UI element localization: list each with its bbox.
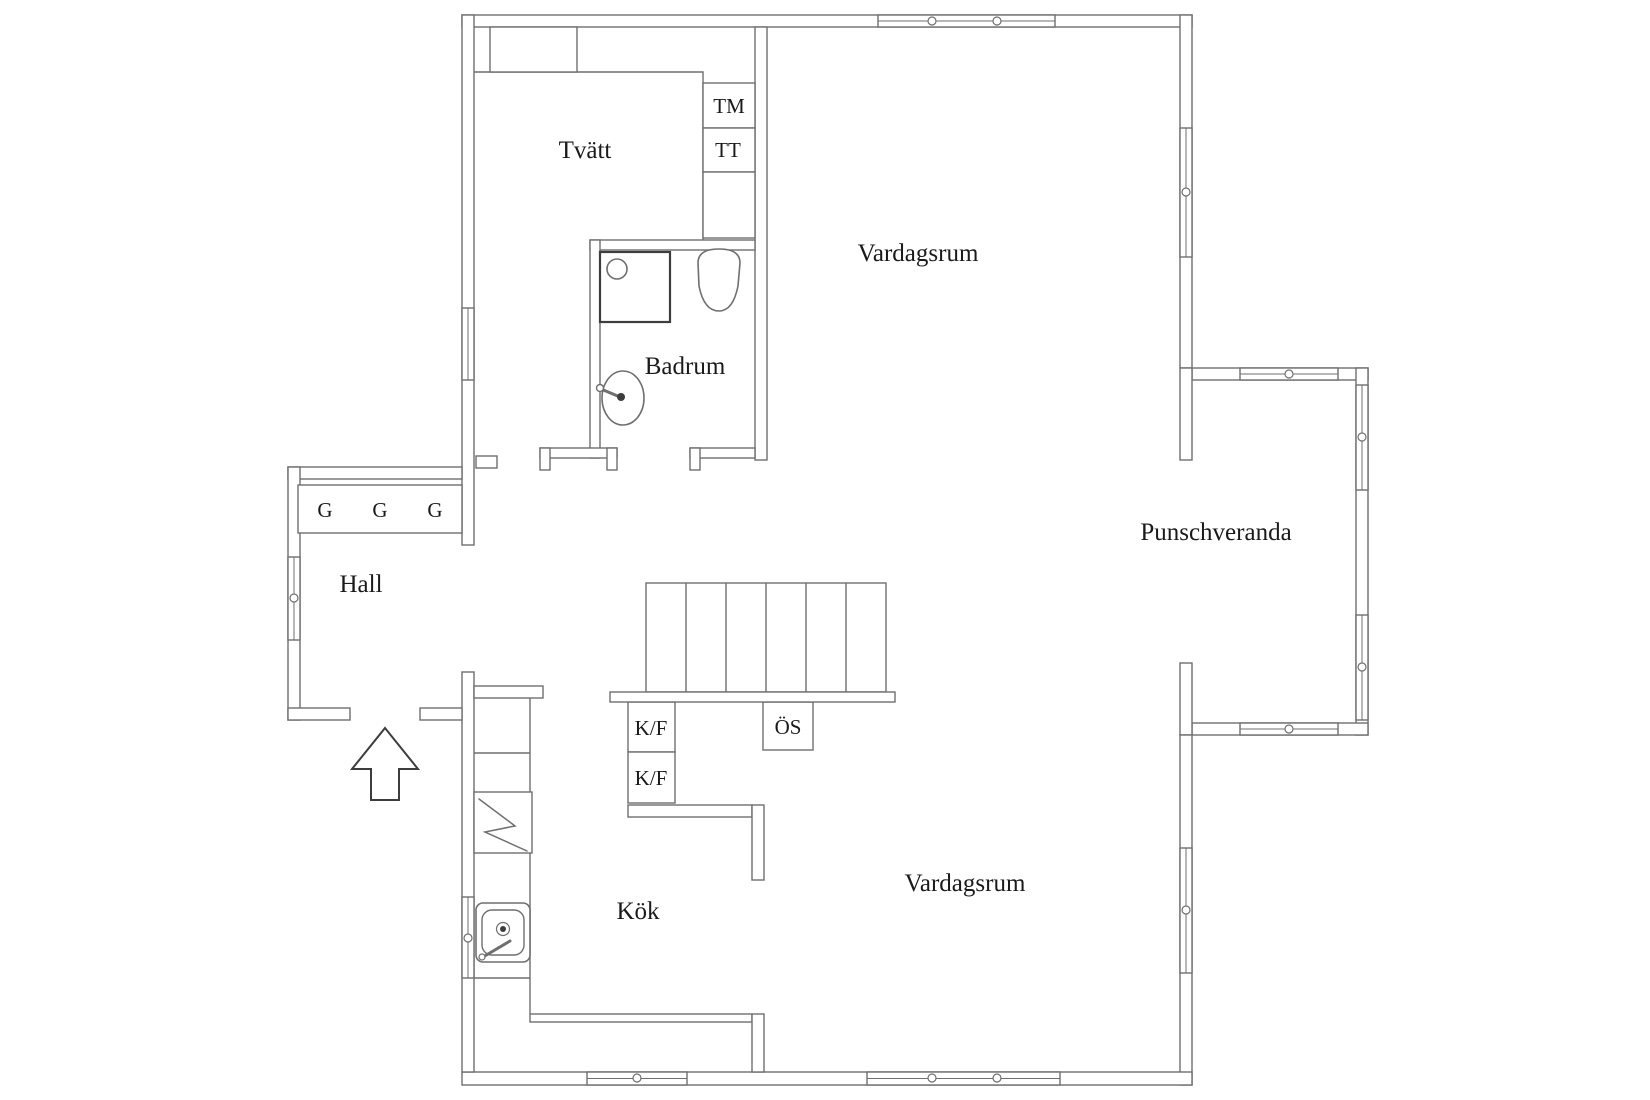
- tvatt-empty-bay: [703, 172, 755, 238]
- window-mullion-icon: [993, 1074, 1001, 1082]
- window-mullion-icon: [1182, 188, 1190, 196]
- floor-plan-page: TvättBadrumVardagsrumHallKökVardagsrumPu…: [0, 0, 1650, 1100]
- wall-block-bottom-left: [540, 448, 617, 458]
- wall-bottom: [462, 1072, 1192, 1085]
- window-mullion-icon: [928, 17, 936, 25]
- window-mullion-icon: [290, 594, 298, 602]
- room-label-badrum: Badrum: [645, 353, 726, 380]
- window-mullion-icon: [464, 934, 472, 942]
- wall-door-jamb-1: [540, 448, 550, 470]
- wall-right-mid-b: [1180, 663, 1192, 735]
- label-closet-2: G: [372, 498, 387, 522]
- wall-kitchen-east-h: [628, 805, 752, 817]
- floor-plan: TvättBadrumVardagsrumHallKökVardagsrumPu…: [0, 0, 1650, 1100]
- label-closet-1: G: [317, 498, 332, 522]
- bathroom-sink-icon: [597, 385, 604, 392]
- stair-landing: [610, 692, 895, 702]
- room-label-vardagsrum-lower: Vardagsrum: [905, 870, 1026, 897]
- room-label-vardagsrum-upper: Vardagsrum: [858, 240, 979, 267]
- window-mullion-icon: [1285, 370, 1293, 378]
- entrance-arrow-icon: [352, 728, 418, 800]
- wall-kitchen-south: [530, 1014, 752, 1022]
- wall-hall-bottom-left: [288, 708, 350, 720]
- wall-right-mid-a: [1180, 368, 1192, 460]
- shower-icon: [607, 259, 627, 279]
- label-tumble-dryer: TT: [715, 138, 741, 162]
- bathroom-sink-icon: [617, 393, 625, 401]
- window-mullion-icon: [1358, 433, 1366, 441]
- wall-kitchen-south-v: [752, 1014, 764, 1072]
- window-mullion-icon: [1182, 906, 1190, 914]
- wall-badrum-top: [590, 240, 755, 250]
- wall-door-jamb-2: [607, 448, 617, 470]
- wall-top: [462, 15, 1192, 27]
- wall-door-jamb-3: [690, 448, 700, 470]
- room-label-tvatt: Tvätt: [559, 137, 612, 164]
- kitchen-sink-icon: [479, 954, 485, 960]
- kitchen-sink-icon: [500, 926, 506, 932]
- label-fridge-freezer-2: K/F: [635, 766, 668, 790]
- label-open-fireplace: ÖS: [775, 715, 802, 739]
- wall-badrum-left: [590, 240, 600, 458]
- wall-left-lower: [462, 672, 474, 1072]
- room-label-kok: Kök: [616, 898, 660, 925]
- window-mullion-icon: [633, 1074, 641, 1082]
- tvatt-cabinets: [490, 27, 577, 72]
- label-closet-3: G: [427, 498, 442, 522]
- toilet-icon: [698, 249, 740, 311]
- window-mullion-icon: [1358, 663, 1366, 671]
- window-mullion-icon: [928, 1074, 936, 1082]
- wall-kitchen-stub: [474, 686, 543, 698]
- window-mullion-icon: [993, 17, 1001, 25]
- room-label-hall: Hall: [339, 571, 382, 598]
- wall-hall-opening-stub: [476, 456, 497, 468]
- wall-kitchen-east-v: [752, 805, 764, 880]
- label-fridge-freezer-1: K/F: [635, 716, 668, 740]
- wall-hall-bottom-right: [420, 708, 462, 720]
- wall-interior-main: [755, 27, 767, 460]
- label-washing-machine: TM: [713, 94, 745, 118]
- wall-hall-top: [288, 467, 462, 479]
- window-mullion-icon: [1285, 725, 1293, 733]
- room-label-punschveranda: Punschveranda: [1140, 519, 1291, 546]
- wall-left-upper: [462, 15, 474, 545]
